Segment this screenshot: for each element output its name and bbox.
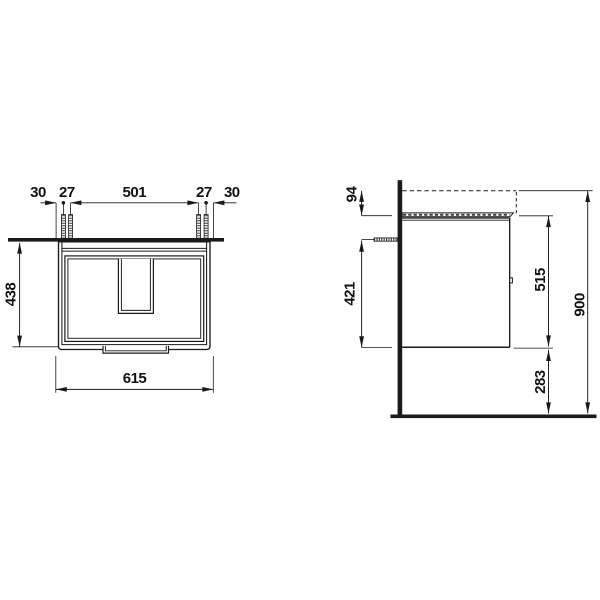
dim-label-height: 438: [3, 283, 20, 307]
dim-label-bolt-gap-right: 27: [196, 184, 212, 201]
dimension-top-offset: 94: [344, 186, 392, 216]
mounting-bolt-4: [204, 203, 208, 238]
dim-label-offset-right: 30: [224, 184, 240, 201]
wall-line: [398, 180, 403, 418]
arrowhead-down: [359, 205, 364, 216]
cabinet-side-panel: [402, 218, 512, 347]
arrowhead-up: [546, 350, 551, 361]
dimension-body-height: 515: [514, 216, 554, 348]
front-view: 30 27 501 27 30 438 615: [3, 184, 240, 393]
mounting-bolt-2: [69, 203, 73, 238]
mounting-bolt-1: [61, 203, 65, 238]
vanity-dimension-drawing: 30 27 501 27 30 438 615: [0, 0, 600, 600]
floor-line: [391, 415, 597, 419]
side-view: 94 421 515 283: [341, 180, 596, 418]
dimension-bolt-to-bottom: 421: [341, 241, 392, 348]
dimension-bottom-clearance: 283: [532, 350, 551, 414]
arrowhead-down: [585, 402, 590, 413]
dim-label-bolt-gap-left: 27: [59, 184, 75, 201]
arrowhead-left: [56, 387, 67, 392]
dim-label-width: 615: [123, 370, 147, 387]
arrowhead-up: [359, 241, 364, 252]
countertop-section: [402, 213, 513, 217]
dimension-front-width: 615: [56, 356, 214, 393]
arrowhead-up: [546, 216, 551, 227]
dim-label-offset-left: 30: [30, 184, 46, 201]
bottom-tray-mask: [103, 345, 169, 353]
arrowhead-down: [546, 335, 551, 346]
countertop-front-edge: [8, 238, 224, 242]
siphon-cutout: [118, 259, 153, 314]
dimension-overall-height: 900: [519, 191, 593, 414]
arrowhead-down: [546, 402, 551, 413]
drawer-handle-notch: [510, 278, 513, 283]
mounting-bolt-3: [197, 203, 201, 238]
arrowhead-right: [202, 387, 213, 392]
dim-label-bolt-span: 501: [123, 184, 147, 201]
technical-drawing-page: 30 27 501 27 30 438 615: [0, 0, 600, 600]
dim-label-bolt-to-bottom: 421: [341, 282, 358, 306]
dim-label-bottom-clearance: 283: [532, 370, 549, 394]
arrowhead-up: [17, 243, 22, 254]
dim-label-overall-height: 900: [571, 293, 588, 317]
dimension-dot: [62, 201, 66, 205]
bottom-tray: [103, 345, 169, 353]
dimension-dot: [204, 201, 208, 205]
dim-label-body-height: 515: [532, 268, 549, 292]
arrowhead-right: [45, 200, 56, 205]
arrowhead-down: [17, 336, 22, 347]
dimension-front-height: 438: [3, 243, 59, 347]
arrowhead-up: [585, 191, 590, 202]
dim-label-top-offset: 94: [344, 186, 361, 203]
mounting-screw: [362, 238, 398, 241]
arrowhead-down: [359, 336, 364, 347]
